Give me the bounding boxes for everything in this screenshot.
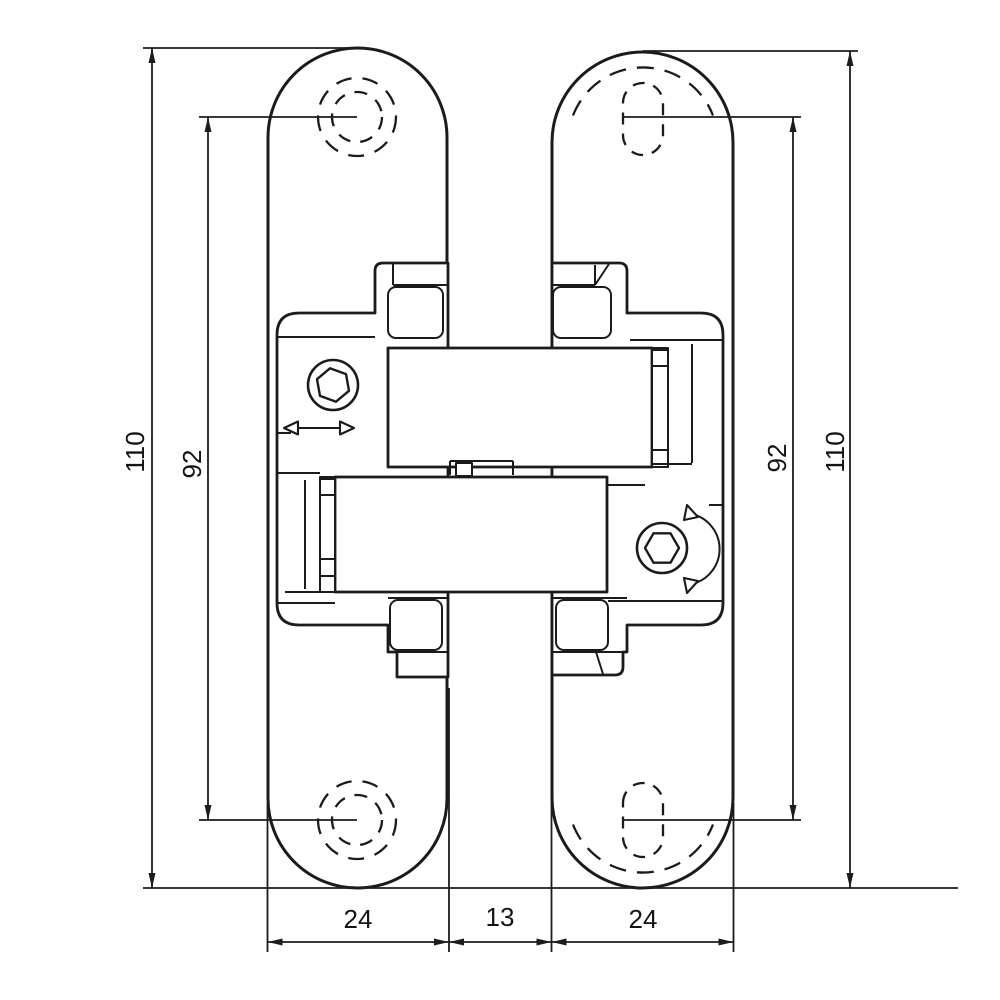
upper-adjustment-arm	[388, 344, 692, 467]
dim-label-left-92: 92	[177, 450, 207, 479]
dim-label-bottom-13: 13	[486, 902, 515, 932]
hinge-body-right-housing	[552, 263, 723, 675]
dimension-bottom-24-13-24: 24 13 24	[268, 902, 734, 946]
dimension-left-inner-92: 92	[177, 117, 212, 820]
dimension-right-outer-110: 110	[820, 51, 854, 888]
dimension-right-inner-92: 92	[762, 117, 797, 820]
hinge-body-left-housing	[277, 263, 448, 677]
dim-label-right-92: 92	[762, 444, 792, 473]
technical-drawing-svg: 110 92 92 110 24 13 24	[0, 0, 1000, 1000]
hex-socket-screw-bottom-icon	[637, 523, 687, 573]
dim-label-right-110: 110	[820, 431, 850, 472]
dim-label-left-110: 110	[120, 431, 150, 472]
hex-socket-screw-top-icon	[308, 360, 358, 410]
dimension-left-outer-110: 110	[120, 48, 156, 888]
dim-label-bottom-left-24: 24	[344, 904, 373, 934]
hinge-dimension-drawing: 110 92 92 110 24 13 24	[0, 0, 1000, 1000]
lower-adjustment-arm	[305, 477, 607, 592]
dim-label-bottom-right-24: 24	[629, 904, 658, 934]
